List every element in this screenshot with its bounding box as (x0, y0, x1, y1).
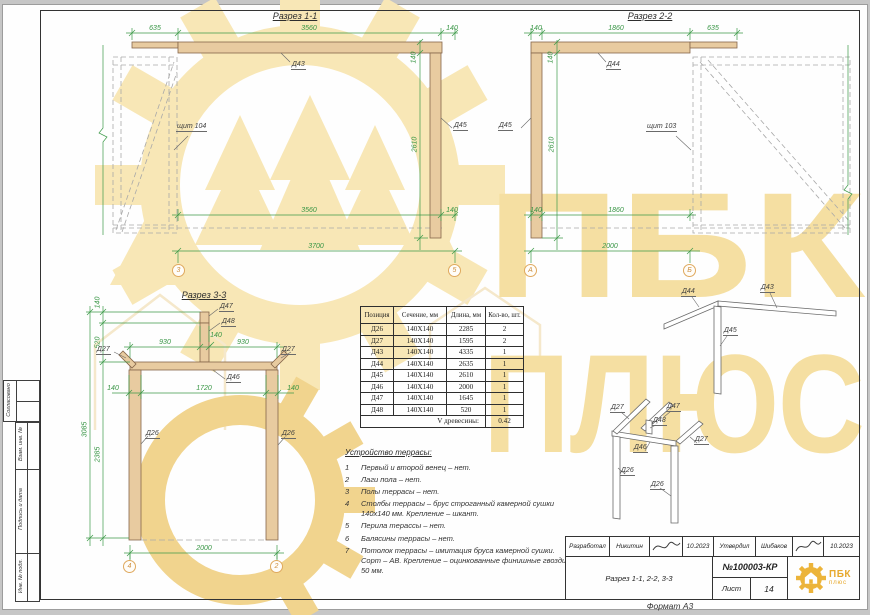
dim-label: 635 (137, 25, 173, 32)
list-item: 7Потолок террасы – имитация бруса камерн… (345, 546, 570, 576)
col-header: Сечение, мм (394, 307, 447, 324)
stamp-inventory-label: Инв. № подл. (18, 541, 24, 611)
gear-house-icon (796, 563, 826, 593)
dim-label: 3700 (298, 243, 334, 250)
section-2-2-drawing (521, 28, 852, 263)
timber-parts (132, 42, 442, 238)
logo-line2: плюс (829, 580, 851, 586)
table-row: Д44140Х14026351 (361, 358, 524, 370)
dim-label: 140 (434, 25, 470, 32)
section-3-3-title: Разрез 3-3 (154, 291, 254, 300)
dim-label: 2000 (186, 545, 222, 552)
part-label-d43: Д43 (291, 61, 306, 70)
dim-label: 1860 (598, 207, 634, 214)
dim-label: 2610 (412, 127, 419, 163)
section-2-2-title: Разрез 2-2 (600, 12, 700, 21)
col-header: Кол-во, шт. (486, 307, 524, 324)
axis-bubble-5: 5 (448, 264, 461, 277)
dim-label: 140 (518, 25, 554, 32)
wood-volume-label: V древесины: (361, 416, 486, 428)
table-row: Д45140Х14026101 (361, 370, 524, 382)
dim-label: 1860 (598, 25, 634, 32)
table-row: Д43140Х14043351 (361, 347, 524, 359)
part-label-d44: Д44 (606, 61, 621, 70)
table-row: Д27140Х14015952 (361, 335, 524, 347)
iso-label-d27-left: Д27 (610, 404, 625, 413)
iso-label-d47: Д47 (666, 403, 681, 412)
col-header: Позиция (361, 307, 394, 324)
specification-table: Позиция Сечение, мм Длина, мм Кол-во, шт… (360, 306, 524, 428)
stamp-agreed-label: Согласовано (6, 365, 12, 435)
table-row: Д46140Х14020001 (361, 381, 524, 393)
terrace-notes: Устройство террасы: 1Первый и второй вен… (345, 448, 570, 578)
title-block: Разработал Никитин 10.2023 Утвердил Шиба… (565, 536, 860, 600)
company-logo: ПБК плюс (788, 557, 859, 599)
dim-label: 140 (518, 207, 554, 214)
dim-label: 140 (95, 285, 102, 321)
wall-panel-104 (113, 57, 442, 233)
section-3-3-drawing (86, 306, 294, 561)
axis-bubble-a: А (524, 264, 537, 277)
approved-label: Утвердил (714, 537, 756, 556)
dim-label: 930 (147, 339, 183, 346)
axis-bubble-2: 2 (270, 560, 283, 573)
stamp-exchange-label: Взам. инв. № (18, 409, 24, 479)
axis-bubble-3: 3 (172, 264, 185, 277)
dim-label: 2610 (549, 127, 556, 163)
iso-label-d26-right: Д26 (650, 481, 665, 490)
dimension-lines (86, 306, 294, 561)
sheet-label: Лист (713, 578, 751, 599)
list-item: 5Перила терассы – нет. (345, 521, 570, 531)
iso-label-d46: Д46 (633, 444, 648, 453)
part-label-d46: Д46 (226, 374, 241, 383)
developed-label: Разработал (566, 537, 610, 556)
section-1-1-drawing (99, 28, 462, 263)
list-item: 3Полы террасы – нет. (345, 487, 570, 497)
developed-signature (650, 537, 683, 556)
document-number-cell: №100003-КР Лист 14 (713, 557, 788, 599)
table-row: Д47140Х14016451 (361, 393, 524, 405)
timber-parts (531, 42, 737, 238)
signature-icon (651, 539, 682, 555)
developed-date: 10.2023 (683, 537, 714, 556)
wall-panel-103 (542, 57, 850, 233)
col-header: Длина, мм (447, 307, 486, 324)
panel-label-104: щит 104 (176, 123, 207, 132)
part-label-d48: Д48 (221, 318, 236, 327)
iso-label-d27-right: Д27 (694, 436, 709, 445)
stamp-signdate-label: Подпись и дата (18, 474, 24, 544)
part-label-d26-right: Д26 (281, 430, 296, 439)
list-item: 1Первый и второй венец – нет. (345, 463, 570, 473)
drawing-sheet: ПБК ПЛЮС (0, 0, 870, 615)
part-label-d45: Д45 (498, 122, 513, 131)
iso-leaders (618, 293, 777, 496)
table-footer-row: V древесины: 0.42 (361, 416, 524, 428)
list-item: 6Балясины террасы – нет. (345, 534, 570, 544)
dim-label: 140 (275, 385, 311, 392)
dim-label: 3085 (82, 412, 89, 448)
axis-bubble-4: 4 (123, 560, 136, 573)
axis-bubble-b: Б (683, 264, 696, 277)
dim-label: 140 (95, 385, 131, 392)
section-1-1-title: Разрез 1-1 (245, 12, 345, 21)
developed-name: Никитин (610, 537, 650, 556)
table-row: Д26140Х14022852 (361, 324, 524, 336)
approved-date: 10.2023 (824, 537, 859, 556)
format-label: Формат А3 (600, 601, 740, 611)
document-number: №100003-КР (713, 557, 787, 578)
dim-label: 140 (198, 332, 234, 339)
drawing-title: Разрез 1-1, 2-2, 3-3 (566, 557, 713, 599)
dim-label: 2000 (592, 243, 628, 250)
iso-label-d43: Д43 (760, 284, 775, 293)
dim-label: 140 (548, 40, 555, 76)
part-label-d27-left: Д27 (96, 346, 111, 355)
dim-label: 140 (434, 207, 470, 214)
signature-icon (794, 539, 823, 555)
list-item: 4Столбы террасы – брус строганный камерн… (345, 499, 570, 519)
dim-label: 1720 (186, 385, 222, 392)
approved-name: Шибаков (756, 537, 793, 556)
table-header-row: Позиция Сечение, мм Длина, мм Кол-во, шт… (361, 307, 524, 324)
dim-label: 2385 (95, 437, 102, 473)
dim-label: 3560 (291, 25, 327, 32)
iso-label-d45: Д45 (723, 327, 738, 336)
wood-volume-value: 0.42 (486, 416, 524, 428)
timber-parts (119, 312, 288, 540)
iso-label-d44: Д44 (681, 288, 696, 297)
sheet-number: 14 (751, 578, 787, 599)
list-item: 2Лаги пола – нет. (345, 475, 570, 485)
dim-label: 140 (411, 40, 418, 76)
table-row: Д48140Х1405201 (361, 404, 524, 416)
part-label-d26-left: Д26 (145, 430, 160, 439)
notes-heading: Устройство террасы: (345, 448, 570, 459)
dim-label: 635 (695, 25, 731, 32)
part-label-d27-right: Д27 (281, 346, 296, 355)
panel-label-103: щит 103 (646, 123, 677, 132)
iso-label-d26-left: Д26 (620, 467, 635, 476)
approved-signature (793, 537, 824, 556)
part-label-d47: Д47 (219, 303, 234, 312)
dim-label: 3560 (291, 207, 327, 214)
title-block-bottom-row: Разрез 1-1, 2-2, 3-3 №100003-КР Лист 14 (566, 557, 859, 599)
dim-label: 520 (95, 325, 102, 361)
iso-label-d48: Д48 (652, 417, 667, 426)
title-block-top-row: Разработал Никитин 10.2023 Утвердил Шиба… (566, 537, 859, 557)
logo-text: ПБК плюс (829, 570, 851, 586)
part-label-d45: Д45 (453, 122, 468, 131)
dim-label: 930 (225, 339, 261, 346)
